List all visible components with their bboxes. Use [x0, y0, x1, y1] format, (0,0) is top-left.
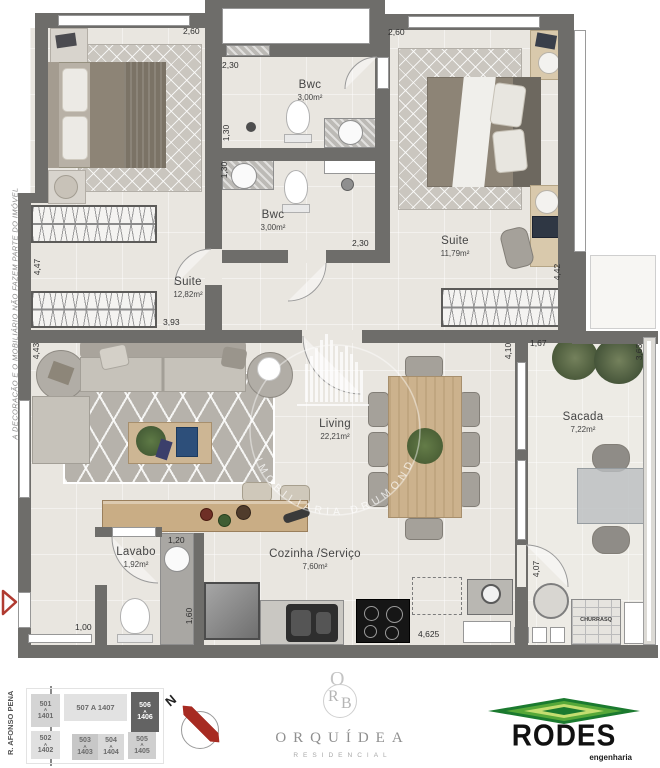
toilet-tank: [284, 134, 312, 143]
room-label-suite-right: Suite11,79m²: [410, 235, 500, 258]
plant: [407, 428, 443, 464]
sink-bowl: [316, 612, 331, 634]
dim-label: 4,10: [503, 336, 513, 366]
sink: [338, 120, 363, 145]
bowl: [236, 505, 251, 520]
dining-chair: [459, 472, 480, 507]
sink: [231, 163, 257, 189]
dining-chair: [405, 356, 443, 378]
window: [517, 362, 526, 450]
wall: [18, 645, 658, 658]
room-label-cozinha: Cozinha /Serviço7,60m²: [245, 548, 385, 571]
north-letter: N: [162, 692, 179, 710]
base-cabinet: [550, 627, 565, 643]
burner: [386, 606, 403, 623]
keyplan-unit-501: 501A1401: [31, 694, 60, 727]
dim-label: 4,07: [531, 554, 541, 584]
pillow: [220, 346, 247, 370]
toilet-tank: [117, 634, 153, 643]
burner: [385, 626, 399, 640]
toilet: [284, 170, 308, 204]
rodes-subtitle: engenharia: [488, 753, 632, 762]
entry-arrow-icon: [1, 589, 19, 617]
window: [19, 400, 30, 498]
balcony-chair: [592, 526, 630, 554]
door-opening: [517, 545, 526, 587]
bbq-label: CHURRASQ: [571, 617, 621, 623]
dining-chair: [405, 518, 443, 540]
keyplan-unit-505: 505A1405: [128, 732, 156, 759]
wall: [194, 533, 204, 645]
disclaimer-text: A DECORAÇÃO E O MOBILIÁRIO NÃO FAZEM PAR…: [11, 144, 20, 484]
floor-lamp: [246, 122, 256, 132]
burner: [364, 625, 377, 638]
wardrobe: [31, 291, 157, 328]
keyplan-unit-503: 503A1403: [72, 734, 98, 760]
table-lamp: [538, 52, 560, 74]
shaft: [222, 8, 370, 44]
room-label-bwc-top: Bwc3,00m²: [272, 79, 348, 102]
dim-label: 1,30: [219, 155, 229, 185]
toilet: [120, 598, 150, 634]
balcony-table: [577, 468, 647, 524]
dim-label: 2,60: [388, 27, 405, 37]
bowl: [200, 508, 213, 521]
keyplan-unit-502: 502A1402: [31, 731, 60, 759]
orquidea-name: ORQUÍDEA: [265, 730, 420, 747]
dining-chair: [459, 392, 480, 427]
door-opening: [302, 330, 362, 343]
dim-label: 4,42: [552, 257, 562, 287]
door-opening: [377, 57, 389, 89]
dining-chair: [368, 472, 389, 507]
ball-lamp: [257, 357, 281, 381]
bed-headboard: [48, 62, 59, 168]
door-opening: [18, 592, 31, 628]
room-label-lavabo: Lavabo1,92m²: [98, 546, 174, 569]
dim-label: 4,43: [31, 336, 41, 366]
pillow: [62, 116, 88, 160]
floor-plan-page: CHURRASQ: [0, 0, 660, 768]
fridge: [204, 582, 260, 640]
decor-item: [55, 33, 77, 49]
wall: [95, 585, 107, 645]
rodes-logo: RODES engenharia: [488, 698, 640, 764]
dim-label: 1,30: [221, 118, 231, 148]
wall: [35, 13, 48, 198]
window: [517, 460, 526, 540]
dim-label: 2,30: [222, 60, 239, 70]
orquidea-subtitle: RESIDENCIAL: [265, 752, 420, 759]
base-cabinet: [463, 621, 511, 643]
room-label-sacada: Sacada7,22m²: [543, 411, 623, 434]
magazine: [176, 427, 198, 457]
keyplan-unit-504: 504A1404: [98, 734, 124, 760]
dim-label: 2,60: [183, 26, 200, 36]
exterior-outline: [590, 255, 656, 329]
shower-head: [341, 178, 354, 191]
dim-label: 1,00: [75, 622, 92, 632]
exterior-outline: [574, 30, 586, 252]
dim-label: 3,63: [634, 337, 644, 367]
window: [58, 15, 190, 26]
rodes-name: RODES: [488, 719, 640, 754]
wardrobe: [441, 288, 565, 327]
dim-label: 1,20: [168, 535, 185, 545]
flower-vase: [54, 175, 78, 199]
laundry-basin: [533, 583, 569, 619]
dim-label: 1,67: [530, 338, 547, 348]
room-label-living: Living22,21m²: [297, 418, 373, 441]
wall: [205, 148, 390, 161]
vent-window: [226, 45, 270, 56]
door-opening: [288, 250, 326, 263]
bowl: [218, 514, 231, 527]
bed-throw: [124, 62, 166, 168]
monogram-b: B: [341, 695, 352, 713]
street-label: R. AFONSO PENA: [6, 700, 15, 755]
keyplan-unit-507: 507 A 1407: [64, 694, 127, 721]
door-opening: [112, 527, 156, 537]
wardrobe: [31, 205, 157, 243]
dim-label: 2,30: [352, 238, 369, 248]
wall: [30, 330, 302, 343]
sofa-chaise: [32, 396, 90, 464]
dim-label: 3,93: [163, 317, 180, 327]
north-arrow-icon: N: [160, 690, 230, 760]
keyplan-unit-506: 506A1406: [131, 692, 159, 732]
base-cabinet: [532, 627, 547, 643]
monogram-r: R: [328, 688, 339, 706]
burner: [364, 606, 379, 621]
dim-label: 4,625: [418, 629, 439, 639]
cabinet-optional: [412, 577, 462, 615]
room-label-suite-left: Suite12,82m²: [143, 276, 233, 299]
keyplan: 501A1401 507 A 1407 506A1406 502A1402 50…: [26, 688, 164, 764]
dim-label: 1,60: [184, 601, 194, 631]
toilet: [286, 100, 310, 134]
service-door: [28, 634, 92, 643]
dim-label: 4,47: [32, 252, 42, 282]
room-label-bwc-bottom: Bwc3,00m²: [235, 209, 311, 232]
table-lamp: [535, 190, 559, 214]
pillow: [489, 82, 527, 128]
pillow: [62, 68, 88, 112]
window: [408, 16, 540, 28]
balcony-rail-glass: [647, 341, 651, 641]
oven-door: [481, 584, 501, 604]
orquidea-logo: O R B ORQUÍDEA RESIDENCIAL: [265, 668, 420, 766]
cooktop: [356, 599, 410, 643]
pillow: [492, 128, 528, 173]
sink-bowl: [291, 610, 311, 636]
bar-stool: [242, 482, 272, 502]
dining-chair: [459, 432, 480, 467]
